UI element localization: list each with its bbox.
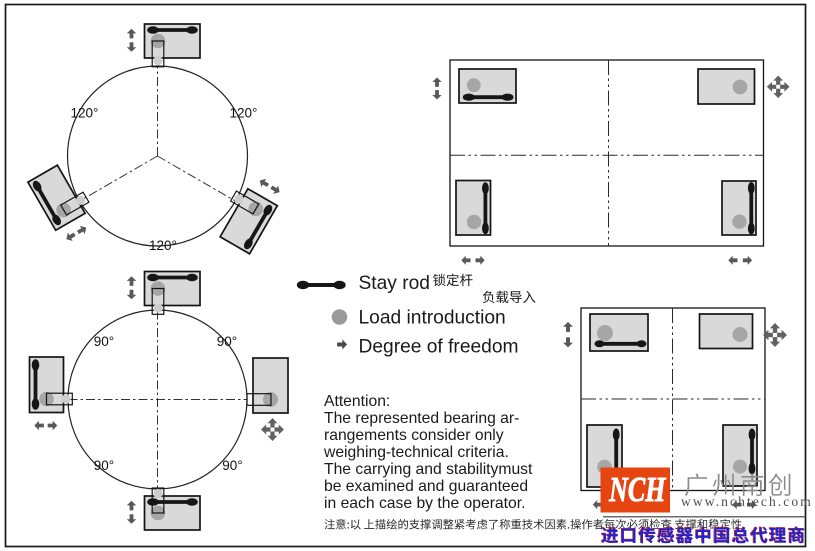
svg-text:NCH: NCH	[608, 470, 666, 508]
svg-text:Stay rod: Stay rod	[359, 273, 430, 294]
svg-text:120°: 120°	[71, 106, 99, 121]
svg-text:90°: 90°	[94, 334, 114, 349]
svg-text:rangements consider only: rangements consider only	[324, 427, 504, 444]
svg-text:90°: 90°	[217, 334, 237, 349]
svg-text:www.nchtech.com: www.nchtech.com	[681, 494, 813, 509]
svg-text:Degree of freedom: Degree of freedom	[359, 337, 519, 358]
svg-text:The represented bearing ar-: The represented bearing ar-	[324, 410, 519, 427]
svg-text:be examined and guaranteed: be examined and guaranteed	[324, 478, 528, 495]
svg-text:120°: 120°	[149, 238, 177, 253]
svg-text:Attention:: Attention:	[324, 393, 390, 410]
svg-text:The carrying and stabilitymust: The carrying and stabilitymust	[324, 461, 533, 478]
svg-text:in each case by the operator.: in each case by the operator.	[324, 495, 525, 512]
svg-text:90°: 90°	[222, 458, 242, 473]
svg-text:120°: 120°	[230, 106, 258, 121]
svg-text:90°: 90°	[94, 458, 114, 473]
svg-text:weighing-technical criteria.: weighing-technical criteria.	[323, 444, 509, 461]
svg-text:Load introduction: Load introduction	[359, 308, 506, 329]
